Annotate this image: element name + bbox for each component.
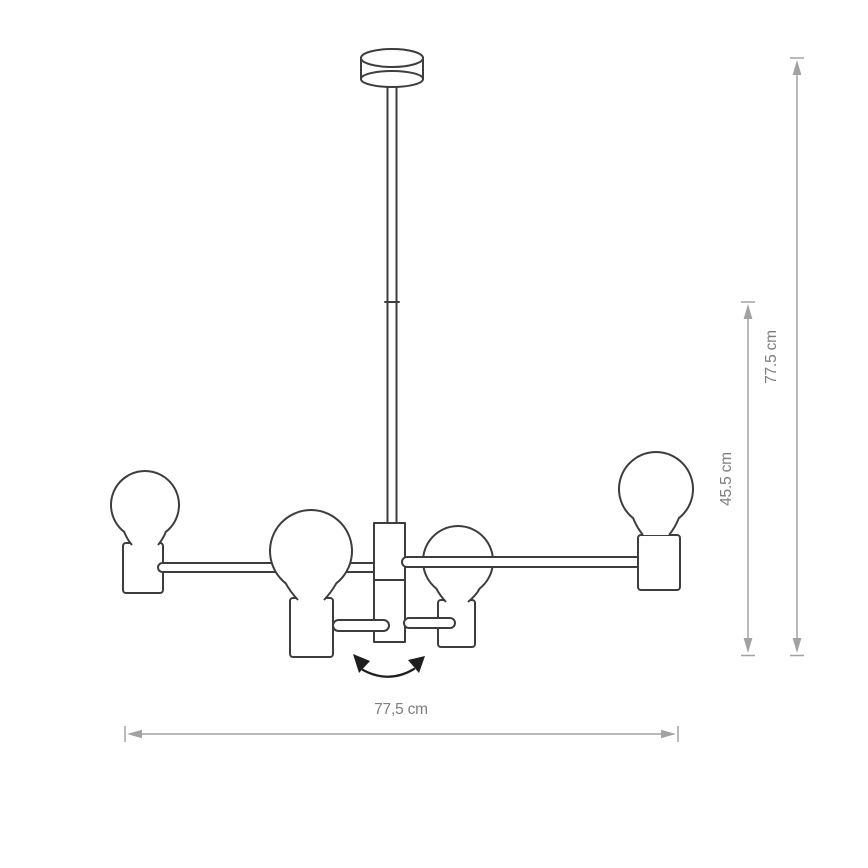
socket-far-right (638, 535, 680, 590)
dimension-diagram: 77,5 cm 77.5 cm 45.5 cm (0, 0, 868, 868)
bulb-far-right (619, 452, 693, 535)
body-height-dimension (741, 302, 755, 656)
total-height-dimension (790, 58, 804, 656)
bulb-far-left (111, 471, 179, 545)
arm-lower-left (333, 620, 389, 631)
suspension-rod (385, 80, 399, 523)
total-height-dimension-label: 77.5 cm (763, 330, 781, 384)
arm-lower-right (404, 618, 455, 628)
rotation-arrow-icon (353, 654, 425, 677)
body-height-dimension-label: 45.5 cm (718, 452, 736, 506)
chandelier-line-drawing (0, 0, 868, 868)
width-dimension-label: 77,5 cm (374, 701, 428, 719)
arm-upper-right (402, 557, 642, 567)
bulb-center-left (270, 510, 352, 600)
width-dimension (125, 726, 678, 742)
socket-far-left (123, 543, 163, 593)
ceiling-canopy (361, 49, 423, 87)
socket-center-left (290, 598, 333, 657)
